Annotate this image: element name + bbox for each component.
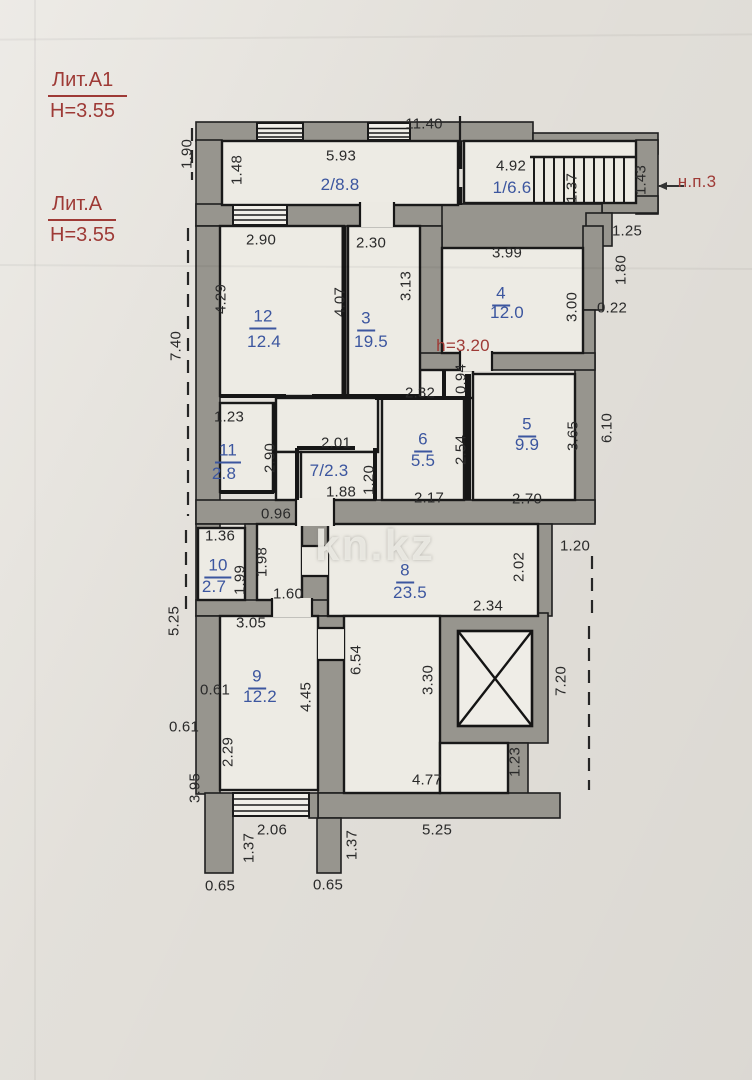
dim: 3.65 (565, 421, 582, 451)
room-8-area: 23.5 (393, 583, 427, 603)
dim: 0.65 (313, 877, 343, 894)
room-6-area: 5.5 (411, 451, 435, 471)
dim: 4.07 (332, 287, 349, 317)
dim: 7.20 (553, 666, 570, 696)
dim: 11.40 (405, 116, 442, 133)
dim: 1.80 (613, 255, 630, 285)
plan-labels: 2/8.81/6.67/2.31212.4319.5412.059.965.58… (0, 0, 752, 1080)
dim: 1.98 (254, 547, 271, 577)
room-12-number: 12 (249, 307, 276, 330)
room-7-label: 7/2.3 (310, 461, 349, 481)
room-4-area: 12.0 (490, 303, 524, 323)
note-ceiling-height: h=3.20 (436, 336, 490, 356)
dim: 3.00 (564, 292, 581, 322)
dim: 2.17 (414, 490, 444, 507)
dim: 2.01 (321, 435, 351, 452)
dim: 0.61 (200, 682, 230, 699)
dim: 2.54 (453, 435, 470, 465)
dim: 3.30 (420, 665, 437, 695)
dim: 4.29 (213, 284, 230, 314)
dim: 2.06 (257, 822, 287, 839)
room-11-number: 11 (215, 441, 241, 464)
dim: 1.20 (560, 538, 590, 555)
dim: 2.32 (405, 385, 435, 402)
dim: 0.94 (453, 364, 470, 394)
dim: 6.10 (599, 413, 616, 443)
dim: 3.99 (492, 245, 522, 262)
dim: 7.40 (168, 331, 185, 361)
dim: 5.93 (326, 148, 356, 165)
dim: 2.34 (473, 598, 503, 615)
room-3-area: 19.5 (354, 332, 388, 352)
dim: 1.99 (232, 565, 249, 595)
dim: 0.61 (169, 719, 199, 736)
dim: 1.23 (507, 747, 524, 777)
floorplan-photo: Лит.А1 Н=3.55 Лит.А Н=3.55 2/8.81/6.67/2… (0, 0, 752, 1080)
dim: 3.95 (187, 773, 204, 803)
dim: 1.37 (564, 173, 581, 203)
dim: 1.20 (361, 465, 378, 495)
dim: 4.45 (298, 682, 315, 712)
dim: 2.70 (512, 491, 542, 508)
dim: 6.54 (348, 645, 365, 675)
dim: 1.25 (612, 223, 642, 240)
room-2-label: 2/8.8 (321, 175, 360, 195)
room-5-area: 9.9 (515, 435, 539, 455)
room-11-area: 2.8 (212, 464, 236, 484)
dim: 1.88 (326, 484, 356, 501)
room-6-number: 6 (414, 430, 432, 453)
dim: 5.25 (422, 822, 452, 839)
dim: 1.48 (229, 155, 246, 185)
dim: 2.30 (356, 235, 386, 252)
room-12-area: 12.4 (247, 332, 281, 352)
dim: 2.02 (511, 552, 528, 582)
dim: 0.65 (205, 878, 235, 895)
dim: 4.77 (412, 772, 442, 789)
dim: 4.92 (496, 158, 526, 175)
dim: 2.29 (220, 737, 237, 767)
dim: 3.13 (398, 271, 415, 301)
dim: 2.90 (262, 443, 279, 473)
note-np3: н.п.3 (678, 172, 717, 192)
dim: 1.37 (344, 830, 361, 860)
watermark: kn.kz (315, 521, 435, 571)
room-1-label: 1/6.6 (493, 178, 532, 198)
dim: 0.96 (261, 506, 291, 523)
dim: 3.05 (236, 615, 266, 632)
dim: 2.90 (246, 232, 276, 249)
dim: 5.25 (166, 606, 183, 636)
dim: 1.43 (633, 165, 650, 195)
dim: 1.23 (214, 409, 244, 426)
room-3-number: 3 (357, 309, 375, 332)
room-10-number: 10 (204, 556, 231, 579)
dim: 1.60 (273, 586, 303, 603)
dim: 1.90 (179, 139, 196, 169)
dim: 0.22 (597, 300, 627, 317)
room-10-area: 2.7 (202, 577, 226, 597)
dim: 1.37 (241, 833, 258, 863)
dim: 1.36 (205, 528, 235, 545)
room-9-area: 12.2 (243, 687, 277, 707)
